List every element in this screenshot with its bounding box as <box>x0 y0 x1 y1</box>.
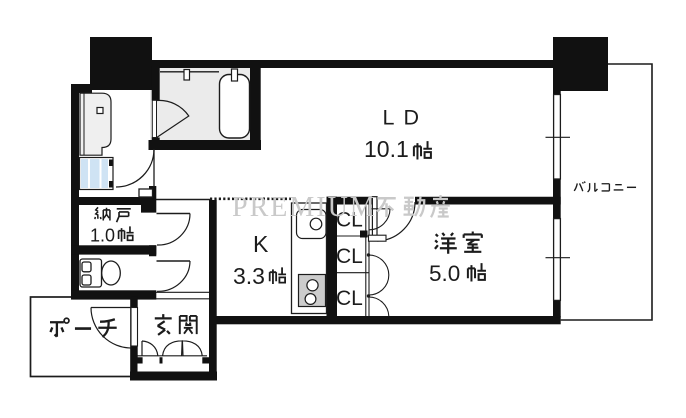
svg-text:K: K <box>253 231 269 257</box>
svg-text:10.1: 10.1 <box>364 136 409 162</box>
svg-text:5.0: 5.0 <box>429 261 460 286</box>
svg-text:3.3: 3.3 <box>233 263 265 289</box>
svg-text:CL: CL <box>336 245 363 268</box>
svg-text:PREMIUM: PREMIUM <box>232 192 377 223</box>
svg-text:1.0: 1.0 <box>90 226 115 246</box>
svg-text:CL: CL <box>336 287 363 310</box>
svg-text:LD: LD <box>383 106 428 130</box>
